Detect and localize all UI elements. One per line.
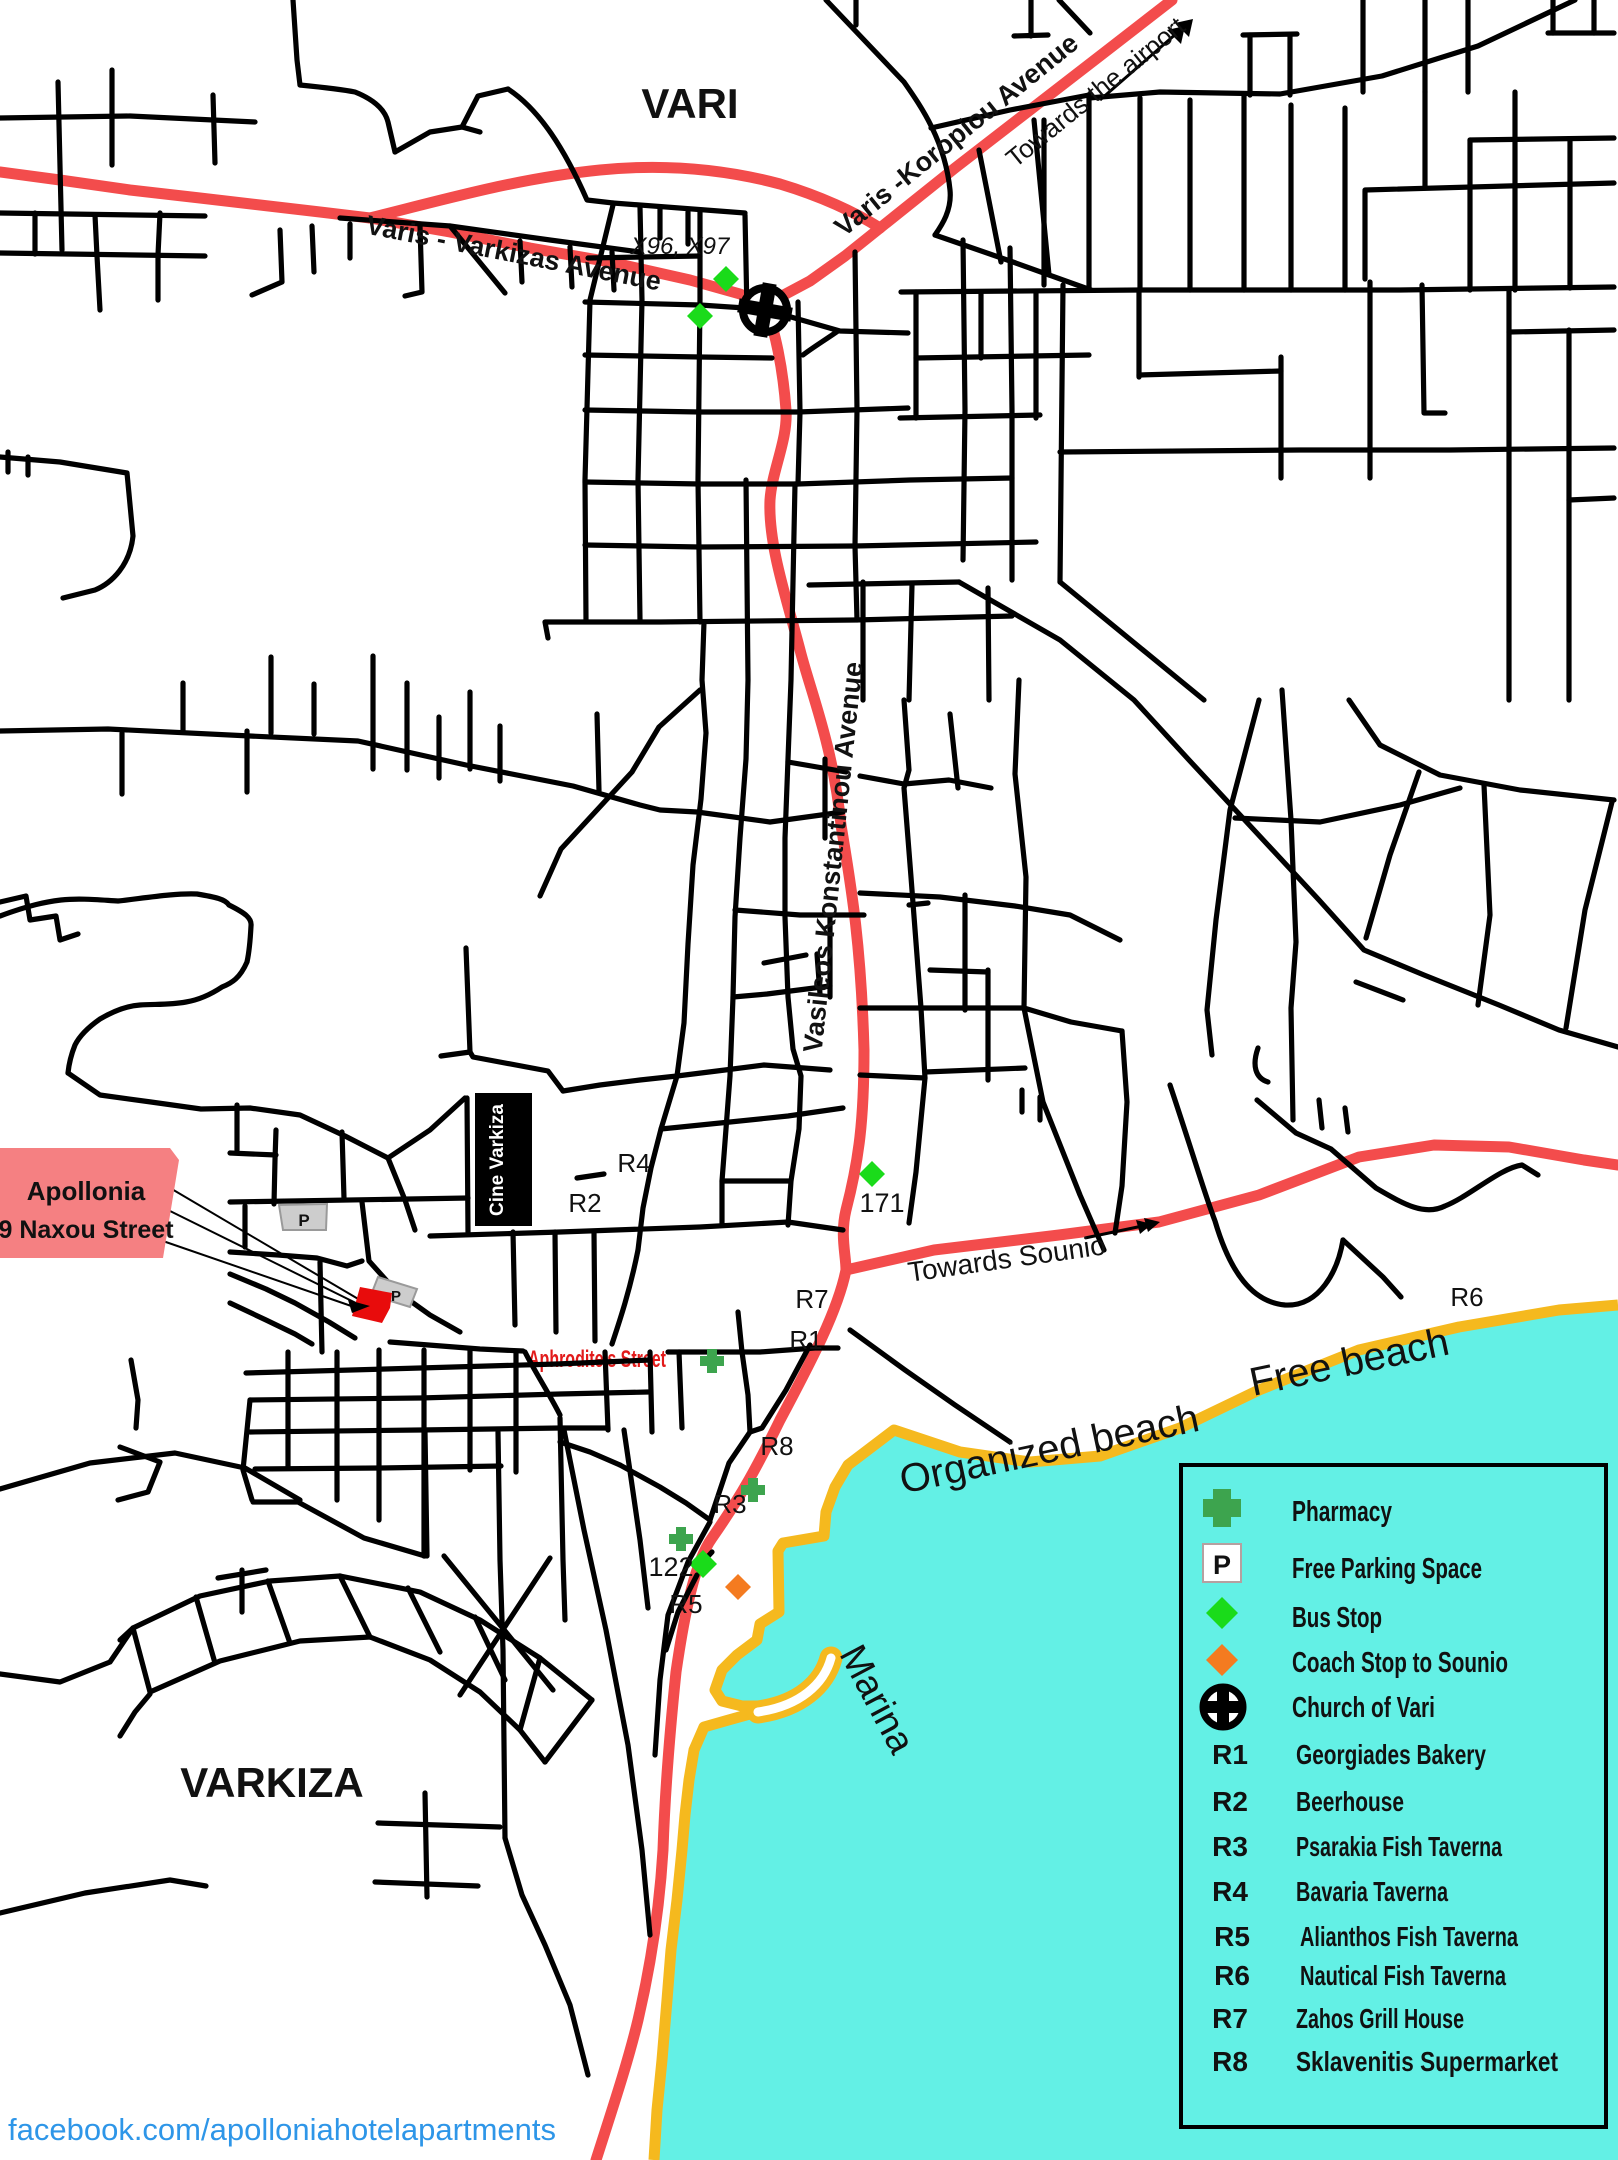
svg-text:Church of Vari: Church of Vari <box>1292 1692 1435 1724</box>
svg-text:R6: R6 <box>1214 1960 1250 1991</box>
svg-text:R3: R3 <box>713 1489 746 1519</box>
svg-text:facebook.com/apolloniahotelapa: facebook.com/apolloniahotelapartments <box>8 2112 556 2147</box>
svg-text:VARKIZA: VARKIZA <box>180 1759 364 1806</box>
svg-text:R7: R7 <box>1212 2003 1248 2034</box>
svg-text:R5: R5 <box>1214 1921 1250 1952</box>
svg-text:Free Parking Space: Free Parking Space <box>1292 1553 1482 1585</box>
svg-text:R2: R2 <box>1212 1786 1248 1817</box>
svg-text:Nautical Fish Taverna: Nautical Fish Taverna <box>1300 1960 1506 1991</box>
svg-text:X96, X97: X96, X97 <box>630 233 731 260</box>
svg-text:R8: R8 <box>1212 2046 1248 2077</box>
svg-text:P: P <box>1213 1550 1231 1580</box>
svg-text:P: P <box>298 1211 309 1230</box>
svg-text:Pharmacy: Pharmacy <box>1292 1496 1392 1528</box>
svg-text:R3: R3 <box>1212 1831 1248 1862</box>
svg-text:Georgiades Bakery: Georgiades Bakery <box>1296 1739 1486 1770</box>
svg-text:Beerhouse: Beerhouse <box>1296 1786 1404 1817</box>
svg-text:Zahos Grill House: Zahos Grill House <box>1296 2003 1464 2034</box>
svg-text:R8: R8 <box>760 1431 793 1461</box>
svg-text:R4: R4 <box>617 1148 650 1178</box>
svg-text:122: 122 <box>648 1552 693 1582</box>
svg-text:Bus Stop: Bus Stop <box>1292 1602 1382 1634</box>
svg-text:R6: R6 <box>1450 1282 1483 1312</box>
svg-text:R5: R5 <box>669 1589 702 1619</box>
svg-text:Alianthos Fish Taverna: Alianthos Fish Taverna <box>1300 1921 1518 1952</box>
svg-text:P: P <box>391 1288 401 1305</box>
svg-text:R4: R4 <box>1212 1876 1248 1907</box>
svg-text:Coach Stop to Sounio: Coach Stop to Sounio <box>1292 1647 1508 1679</box>
svg-text:R1: R1 <box>1212 1739 1248 1770</box>
svg-text:9 Naxou Street: 9 Naxou Street <box>0 1216 174 1244</box>
svg-text:R1: R1 <box>789 1325 822 1355</box>
svg-text:VARI: VARI <box>641 80 738 127</box>
svg-text:Cine Varkiza: Cine Varkiza <box>487 1104 508 1216</box>
svg-text:R2: R2 <box>568 1188 601 1218</box>
svg-text:Psarakia Fish Taverna: Psarakia Fish Taverna <box>1296 1831 1502 1862</box>
svg-text:R7: R7 <box>795 1284 828 1314</box>
svg-text:Sklavenitis Supermarket: Sklavenitis Supermarket <box>1296 2046 1558 2077</box>
svg-text:Apollonia: Apollonia <box>27 1176 146 1206</box>
svg-text:171: 171 <box>859 1188 904 1218</box>
svg-text:Bavaria Taverna: Bavaria Taverna <box>1296 1876 1448 1907</box>
